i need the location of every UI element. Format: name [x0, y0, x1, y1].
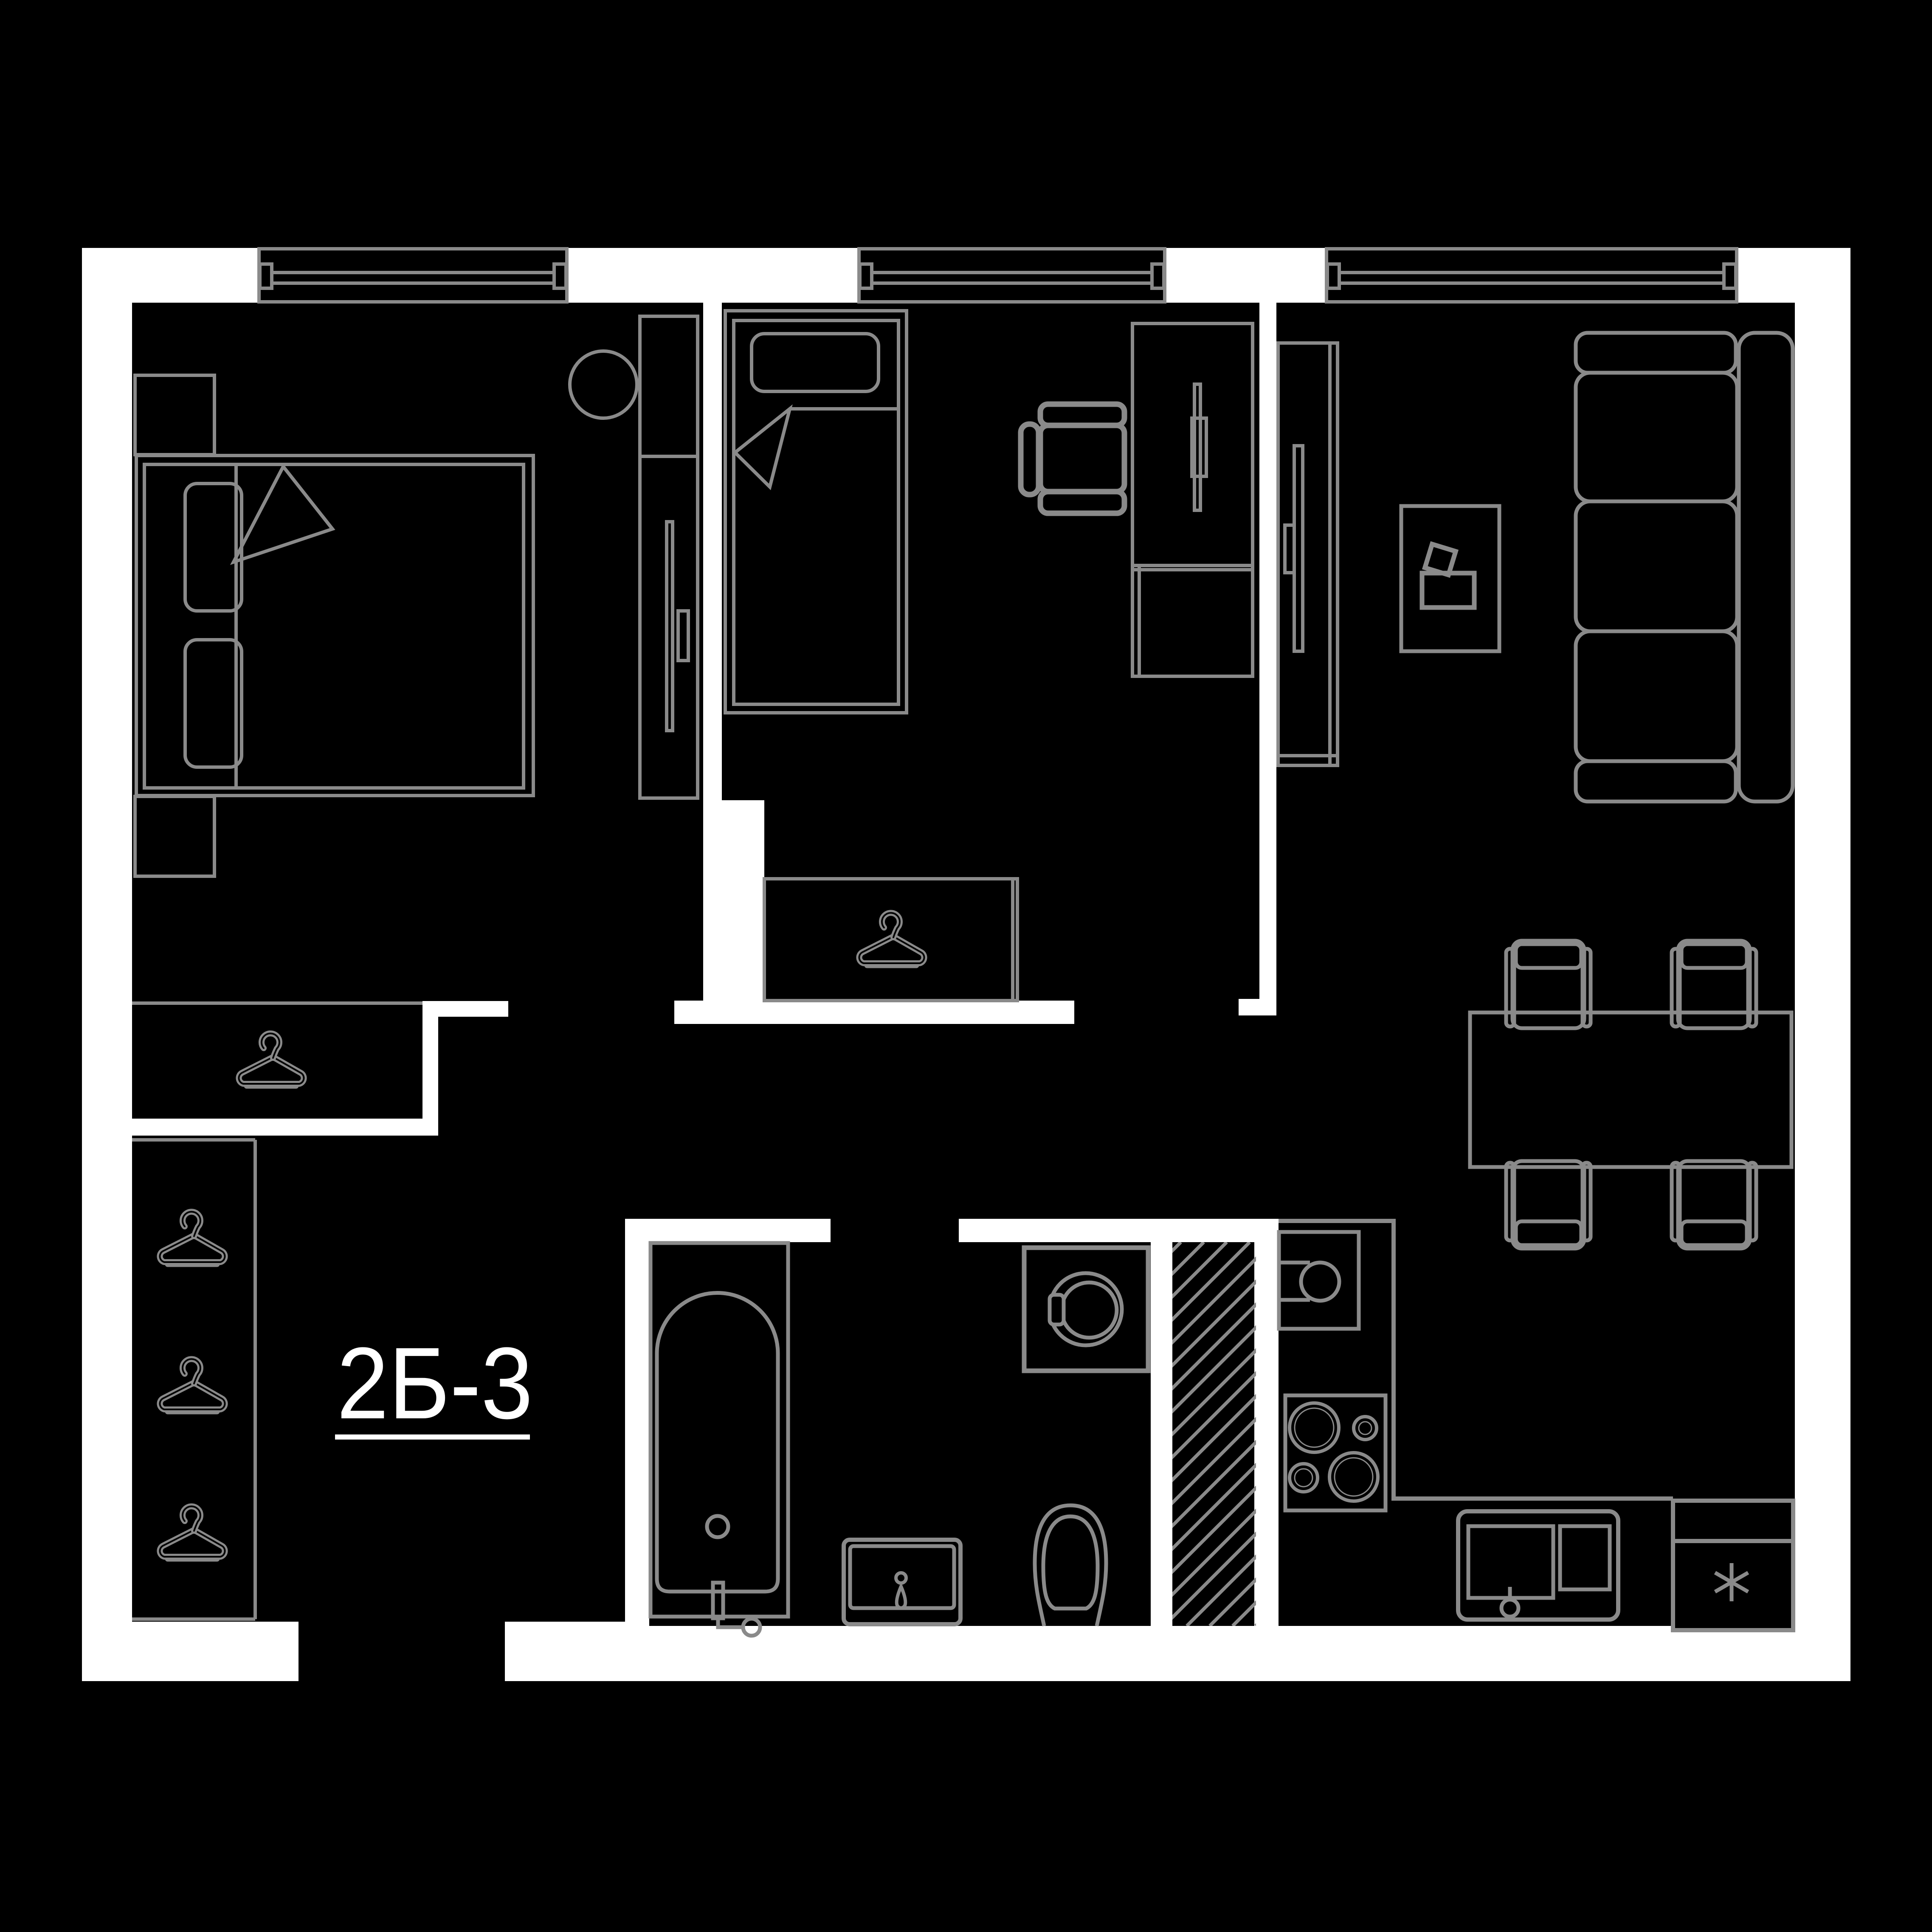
svg-text:2Б-3: 2Б-3 [337, 1326, 533, 1440]
